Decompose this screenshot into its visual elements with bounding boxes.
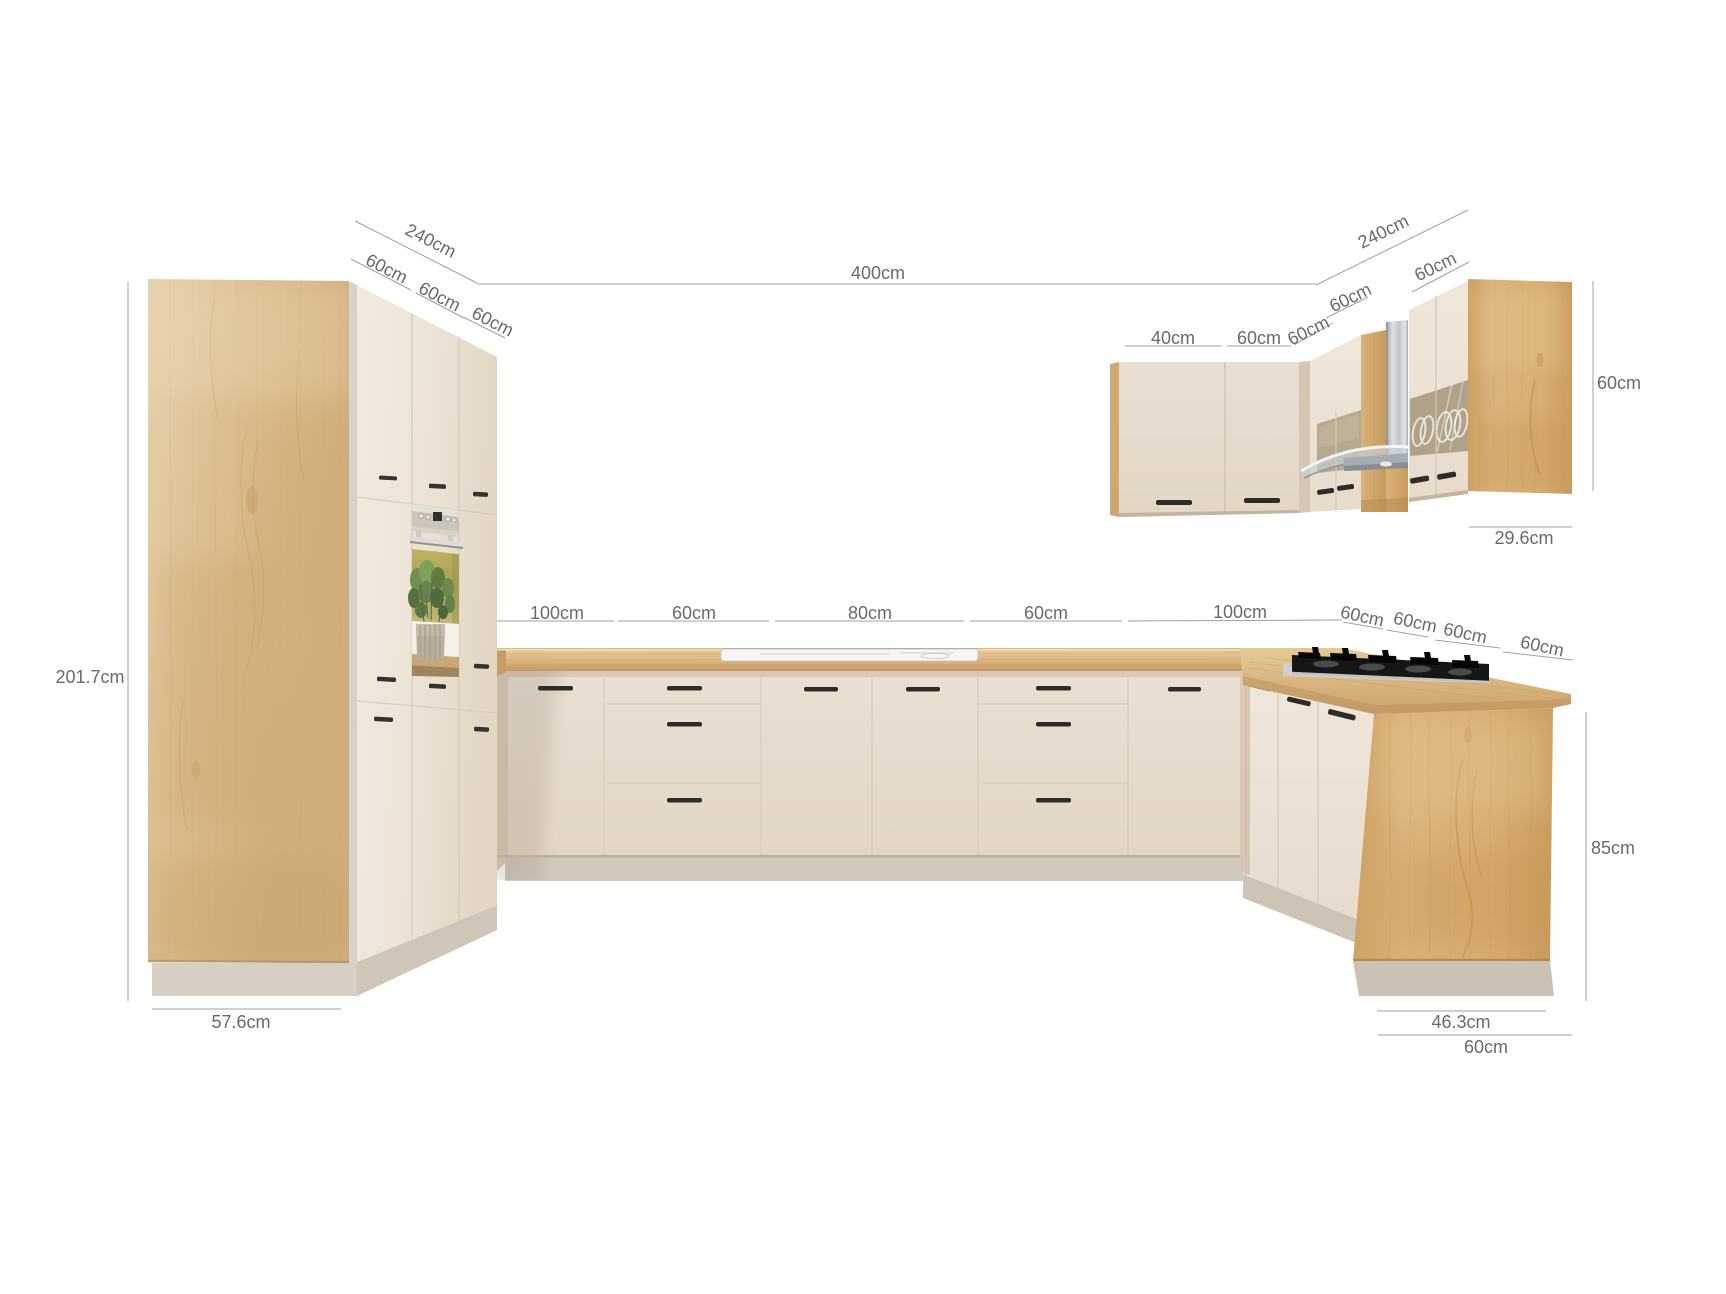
svg-text:400cm: 400cm bbox=[851, 263, 905, 283]
svg-text:201.7cm: 201.7cm bbox=[55, 667, 124, 687]
svg-text:60cm: 60cm bbox=[1237, 328, 1281, 348]
svg-text:85cm: 85cm bbox=[1591, 838, 1635, 858]
svg-text:60cm: 60cm bbox=[672, 603, 716, 623]
svg-text:100cm: 100cm bbox=[530, 603, 584, 623]
svg-text:60cm: 60cm bbox=[1597, 373, 1641, 393]
svg-text:80cm: 80cm bbox=[848, 603, 892, 623]
svg-text:100cm: 100cm bbox=[1213, 602, 1267, 622]
svg-text:29.6cm: 29.6cm bbox=[1494, 528, 1553, 548]
svg-text:60cm: 60cm bbox=[1464, 1037, 1508, 1057]
svg-text:57.6cm: 57.6cm bbox=[211, 1012, 270, 1032]
svg-text:60cm: 60cm bbox=[1024, 603, 1068, 623]
svg-text:40cm: 40cm bbox=[1151, 328, 1195, 348]
svg-text:46.3cm: 46.3cm bbox=[1431, 1012, 1490, 1032]
